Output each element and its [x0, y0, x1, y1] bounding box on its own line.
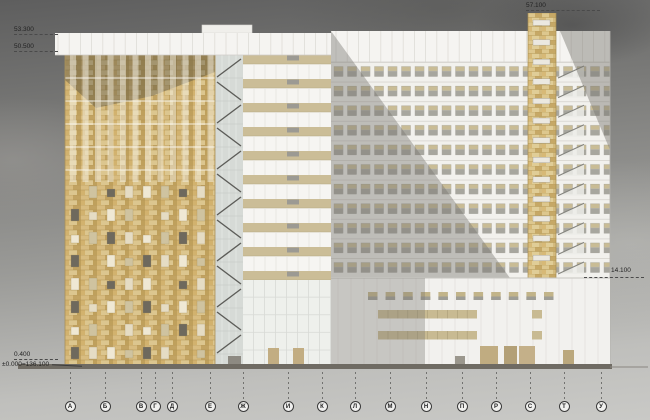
glass-screen-strip [208, 55, 214, 182]
middle-slab-facade [243, 55, 331, 368]
tower-window [179, 324, 187, 336]
axis-leader-line [210, 372, 211, 400]
tower-window [161, 304, 169, 312]
tower-window [107, 209, 115, 221]
stair-shaft [215, 55, 243, 368]
strip-window [533, 138, 550, 144]
vent-box [287, 224, 299, 229]
tower-window [71, 301, 79, 313]
axis-leader-line [355, 372, 356, 400]
axis-bubble-Р: Р [491, 401, 502, 412]
podium-facade [331, 278, 610, 368]
glass-screen-strip [170, 55, 176, 182]
glass-screen-strip [108, 55, 114, 182]
vent-box [287, 248, 299, 253]
brick-tower [65, 55, 215, 368]
vent-box [287, 272, 299, 277]
tower-window [89, 324, 97, 336]
small-window [532, 331, 542, 340]
vent-box [287, 152, 299, 157]
axis-leader-line [70, 372, 71, 400]
axis-leader-line [426, 372, 427, 400]
vent-box [287, 80, 299, 85]
tower-window [125, 324, 133, 336]
penthouse-box [202, 25, 252, 33]
tower-window [107, 232, 115, 244]
tower-window [71, 209, 79, 221]
level-mark-ground-upper: 0.400 [14, 351, 58, 360]
glass-screen-strip [195, 55, 201, 182]
axis-bubble-Г: Г [150, 401, 161, 412]
axis-leader-line [288, 372, 289, 400]
axis-bubble-К: К [317, 401, 328, 412]
tower-window [179, 301, 187, 313]
axis-bubble-В: В [136, 401, 147, 412]
podium-window-glass [544, 297, 554, 301]
tower-window [107, 281, 115, 289]
tower-window [89, 186, 97, 198]
tower-window [161, 232, 169, 244]
tower-window [107, 301, 115, 313]
glass-screen-strip [95, 55, 101, 182]
strip-window [533, 40, 550, 46]
strip-window [533, 216, 550, 222]
tower-window [89, 347, 97, 359]
axis-bubble-М: М [385, 401, 396, 412]
axis-leader-line [564, 372, 565, 400]
vent-box [287, 128, 299, 133]
podium-window-glass [509, 297, 519, 301]
tower-window [197, 232, 205, 244]
tower-window [143, 186, 151, 198]
tower-window [143, 301, 151, 313]
tower-window [89, 232, 97, 244]
tower-window [197, 324, 205, 336]
axis-leader-line [172, 372, 173, 400]
level-mark-top-left-upper: 53.300 [14, 26, 58, 35]
tower-window [107, 255, 115, 267]
level-mark-top-left-lower: 50.500 [14, 43, 58, 52]
axis-leader-line [601, 372, 602, 400]
tower-window [107, 189, 115, 197]
tower-window [179, 209, 187, 221]
tower-window [179, 281, 187, 289]
axis-leader-line [243, 372, 244, 400]
vent-box [287, 176, 299, 181]
level-mark-mid-right: 14.100 [611, 267, 631, 274]
tower-window [179, 189, 187, 197]
glass-screen-strip [133, 55, 139, 182]
strip-window [533, 118, 550, 124]
axis-bubble-Б: Б [100, 401, 111, 412]
tower-window [179, 232, 187, 244]
level-label: 0.400 [14, 351, 30, 358]
tower-window [89, 212, 97, 220]
podium-window-glass [456, 297, 466, 301]
strip-window [533, 177, 550, 183]
vent-box [287, 200, 299, 205]
axis-bubble-У: У [596, 401, 607, 412]
tower-window [71, 235, 79, 243]
tower-window [161, 212, 169, 220]
elevation-drawing: 53.300 50.500 57.100 14.100 0.400 ±0.000… [0, 0, 650, 420]
tower-window [71, 278, 79, 290]
small-window [532, 310, 542, 319]
level-dash-mid-right [584, 277, 644, 278]
glass-screen-strip [158, 55, 164, 182]
podium-window-glass [438, 297, 448, 301]
level-label: 53.300 [14, 26, 34, 33]
crown-band-left [55, 33, 331, 55]
tower-window [143, 278, 151, 290]
axis-leader-line [155, 372, 156, 400]
tower-window [125, 278, 133, 290]
tower-window [71, 327, 79, 335]
tower-window [179, 255, 187, 267]
tower-window [197, 186, 205, 198]
vent-box [287, 104, 299, 109]
axis-leader-line [530, 372, 531, 400]
axis-leader-line [390, 372, 391, 400]
level-label: 50.500 [14, 43, 34, 50]
tower-window [125, 258, 133, 266]
tower-window [125, 232, 133, 244]
tower-window [125, 301, 133, 313]
tower-window [143, 327, 151, 335]
tower-window [197, 258, 205, 266]
podium-window-glass [474, 297, 484, 301]
level-mark-zero: ±0.000=136.100 [2, 361, 49, 368]
axis-bubble-Н: Н [421, 401, 432, 412]
glass-screen-strip [83, 55, 89, 182]
level-label: ±0.000=136.100 [2, 361, 49, 368]
tower-window [143, 255, 151, 267]
axis-leader-line [462, 372, 463, 400]
tower-window [197, 350, 205, 358]
building-graphic [0, 0, 650, 420]
tower-window [161, 255, 169, 267]
tower-window [89, 278, 97, 290]
axis-bubble-Д: Д [167, 401, 178, 412]
tower-window [71, 255, 79, 267]
tower-window [197, 209, 205, 221]
axis-bubble-Е: Е [205, 401, 216, 412]
tower-window [71, 347, 79, 359]
axis-bubble-Ж: Ж [238, 401, 249, 412]
glass-base [243, 280, 331, 368]
podium-window-glass [526, 297, 536, 301]
ground-line [18, 364, 648, 369]
axis-leader-line [105, 372, 106, 400]
vent-box [287, 56, 299, 61]
strip-window [533, 255, 550, 261]
podium-window-glass [491, 297, 501, 301]
level-mark-top-right: 57.100 [526, 2, 600, 11]
tower-window [107, 347, 115, 359]
tower-window [197, 278, 205, 290]
axis-leader-line [322, 372, 323, 400]
tower-window [143, 235, 151, 243]
axis-bubble-А: А [65, 401, 76, 412]
level-label: 14.100 [611, 267, 631, 274]
podium-shadow [331, 278, 425, 368]
axis-bubble-И: И [283, 401, 294, 412]
strip-window [533, 157, 550, 163]
tower-window [161, 347, 169, 359]
strip-window [533, 79, 550, 85]
strip-window [533, 20, 550, 26]
axis-leader-line [141, 372, 142, 400]
tower-window [125, 209, 133, 221]
strip-window [533, 236, 550, 242]
axis-bubble-П: П [457, 401, 468, 412]
glass-screen-strip [120, 55, 126, 182]
glass-screen-strip [70, 55, 76, 182]
tower-window [197, 301, 205, 313]
tower-window [125, 350, 133, 358]
axis-leader-line [496, 372, 497, 400]
strip-window [533, 98, 550, 104]
glass-screen-strip [183, 55, 189, 182]
tower-window [125, 186, 133, 198]
tower-window [161, 186, 169, 198]
strip-window [533, 196, 550, 202]
axis-bubble-С: С [525, 401, 536, 412]
tower-window [161, 324, 169, 336]
axis-bubble-Л: Л [350, 401, 361, 412]
axis-bubble-Т: Т [559, 401, 570, 412]
glass-screen-strip [145, 55, 151, 182]
strip-window [533, 59, 550, 64]
tower-window [143, 347, 151, 359]
ground-band [18, 364, 612, 369]
tower-window [89, 304, 97, 312]
roof-crown-band [55, 25, 331, 55]
level-label: 57.100 [526, 2, 546, 9]
